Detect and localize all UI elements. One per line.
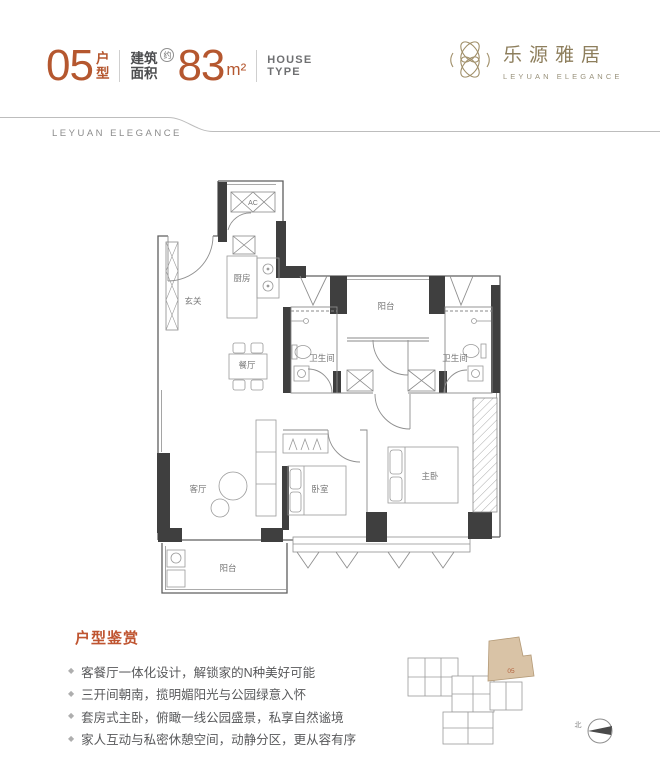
bullet-diamond-icon: ◆ [68,735,74,743]
room-label-balcony-top: 阳台 [377,301,394,311]
logo-knot-icon [447,33,493,87]
compass-north-label: 北 [575,721,582,729]
room-label-balcony-bottom: 阳台 [219,563,236,573]
logo-text: 乐源雅居 LEYUAN ELEGANCE [503,40,622,81]
appreciation-bullets: ◆ 客餐厅一体化设计，解锁家的N种美好可能 ◆ 三开间朝南，揽明媚阳光与公园绿意… [68,660,356,750]
logo-name-en: LEYUAN ELEGANCE [503,72,622,81]
unit-suffix-char: 型 [96,66,110,81]
bullet-text: 家人互动与私密休憩空间，动静分区，更从容有序 [81,729,356,748]
floor-plan: 玄关 厨房 餐厅 客厅 阳台 卫生间 卫生间 卧室 主卧 阳台 AC [140,166,530,648]
laundry-fixtures [167,550,185,587]
area-unit: m² [226,60,246,80]
unit-suffix: 户 型 [96,51,110,81]
room-label-ac: AC [248,200,258,207]
house-type-line: TYPE [267,66,312,79]
bullet-diamond-icon: ◆ [68,667,74,675]
kitchen-fixtures [227,256,279,318]
list-item: ◆ 套房式主卧，俯瞰一线公园盛景，私享自然谧境 [68,705,356,728]
room-label-kitchen: 厨房 [233,273,250,283]
header-divider [119,50,120,82]
room-label-bedroom: 卧室 [311,484,329,494]
area-label-line: 面积 [130,66,157,81]
bullet-text: 三开间朝南，揽明媚阳光与公园绿意入怀 [81,684,306,703]
appreciation-section: 户型鉴赏 ◆ 客餐厅一体化设计，解锁家的N种美好可能 ◆ 三开间朝南，揽明媚阳光… [68,627,356,750]
appreciation-title: 户型鉴赏 [75,627,356,648]
poster-page: 05 户 型 建筑 面积 约 83 m² HOUSE TYPE [0,0,660,771]
keyplan-unit-label: 05 [507,668,515,675]
outer-walls [158,181,500,593]
banner-rule: LEYUAN ELEGANCE [0,100,660,145]
room-label-entry: 玄关 [184,296,202,306]
logo-name-cn: 乐源雅居 [503,40,622,67]
unit-number: 05 [46,47,93,85]
unit-suffix-char: 户 [96,51,110,66]
bath-fixtures [291,319,491,382]
bullet-diamond-icon: ◆ [68,712,74,720]
key-plan: 05 北 [395,623,625,765]
approx-badge: 约 [160,48,174,62]
area-value: 83 [177,47,224,85]
brand-logo: 乐源雅居 LEYUAN ELEGANCE [447,33,622,87]
room-label-dining: 餐厅 [238,360,256,370]
room-label-bath-left: 卫生间 [309,353,335,363]
banner-text: LEYUAN ELEGANCE [52,128,182,139]
unit-header: 05 户 型 建筑 面积 约 83 m² HOUSE TYPE [46,47,312,85]
house-type-label: HOUSE TYPE [267,54,312,79]
list-item: ◆ 家人互动与私密休憩空间，动静分区，更从容有序 [68,728,356,751]
living-fixtures [211,420,276,517]
partitions [283,307,492,512]
house-type-line: HOUSE [267,54,312,67]
room-label-bath-right: 卫生间 [442,353,468,363]
header-divider [256,50,257,82]
list-item: ◆ 三开间朝南，揽明媚阳光与公园绿意入怀 [68,683,356,706]
room-label-living: 客厅 [189,484,207,494]
area-label-line: 建筑 [130,51,157,66]
bullet-text: 客餐厅一体化设计，解锁家的N种美好可能 [81,662,315,681]
area-label: 建筑 面积 [130,51,157,81]
bullet-diamond-icon: ◆ [68,690,74,698]
bullet-text: 套房式主卧，俯瞰一线公园盛景，私享自然谧境 [81,707,344,726]
list-item: ◆ 客餐厅一体化设计，解锁家的N种美好可能 [68,660,356,683]
room-label-master: 主卧 [421,471,439,481]
bedroom-fixtures [283,434,346,515]
compass-icon: 北 [575,719,613,743]
